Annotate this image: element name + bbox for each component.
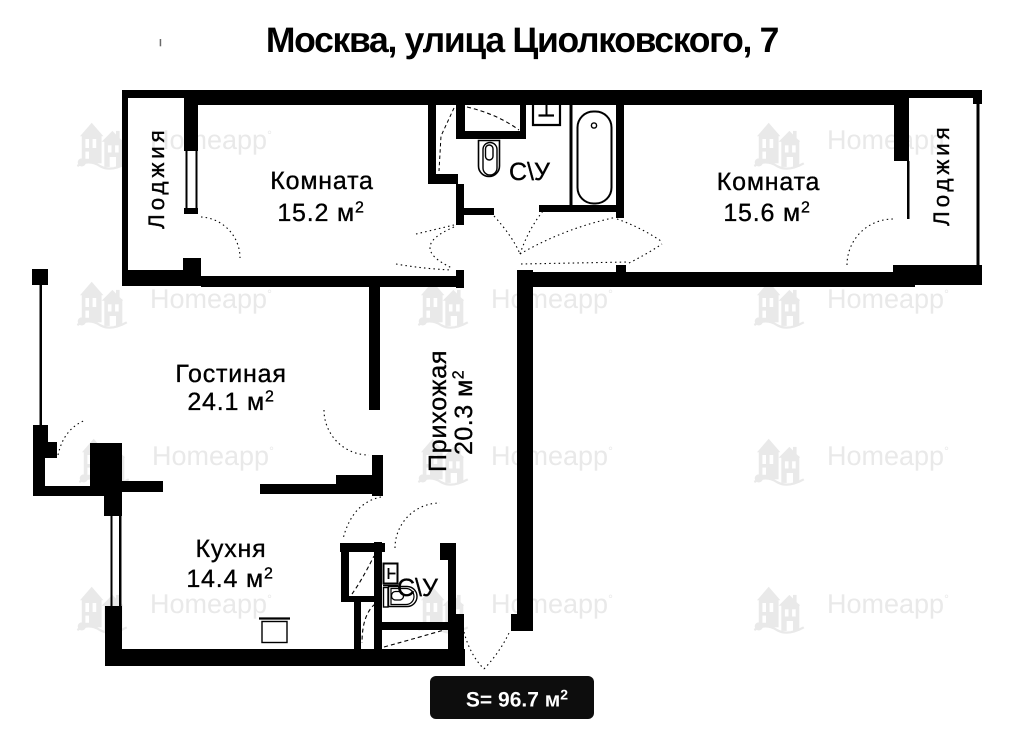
- svg-text:Homeapp°: Homeapp°: [150, 589, 272, 619]
- svg-text:С\У: С\У: [397, 574, 438, 602]
- svg-text:Homeapp°: Homeapp°: [491, 589, 613, 619]
- svg-text:Комната: Комната: [717, 168, 821, 196]
- svg-text:Homeapp°: Homeapp°: [491, 441, 613, 471]
- svg-text:Homeapp°: Homeapp°: [827, 441, 949, 471]
- svg-text:Homeapp°: Homeapp°: [150, 284, 272, 314]
- svg-text:Лоджия: Лоджия: [144, 126, 169, 229]
- svg-text:24.1 м2: 24.1 м2: [187, 388, 274, 416]
- svg-text:Москва, улица Циолковского, 7: Москва, улица Циолковского, 7: [266, 20, 779, 60]
- svg-text:Кухня: Кухня: [196, 535, 267, 563]
- svg-text:С\У: С\У: [509, 158, 550, 186]
- svg-text:20.3 м2: 20.3 м2: [450, 370, 478, 455]
- svg-text:Homeapp°: Homeapp°: [827, 589, 949, 619]
- svg-text:15.6 м2: 15.6 м2: [723, 199, 810, 227]
- svg-text:Гостиная: Гостиная: [175, 360, 286, 388]
- svg-text:Лоджия: Лоджия: [929, 123, 954, 226]
- svg-text:Homeapp°: Homeapp°: [827, 284, 949, 314]
- svg-text:Homeapp°: Homeapp°: [152, 441, 274, 471]
- svg-text:Комната: Комната: [270, 167, 374, 195]
- svg-text:Homeapp°: Homeapp°: [491, 284, 613, 314]
- svg-text:S= 96.7 м2: S= 96.7 м2: [466, 687, 568, 712]
- svg-text:Прихожая: Прихожая: [424, 350, 452, 472]
- svg-text:14.4 м2: 14.4 м2: [186, 565, 273, 593]
- svg-text:15.2 м2: 15.2 м2: [277, 199, 364, 227]
